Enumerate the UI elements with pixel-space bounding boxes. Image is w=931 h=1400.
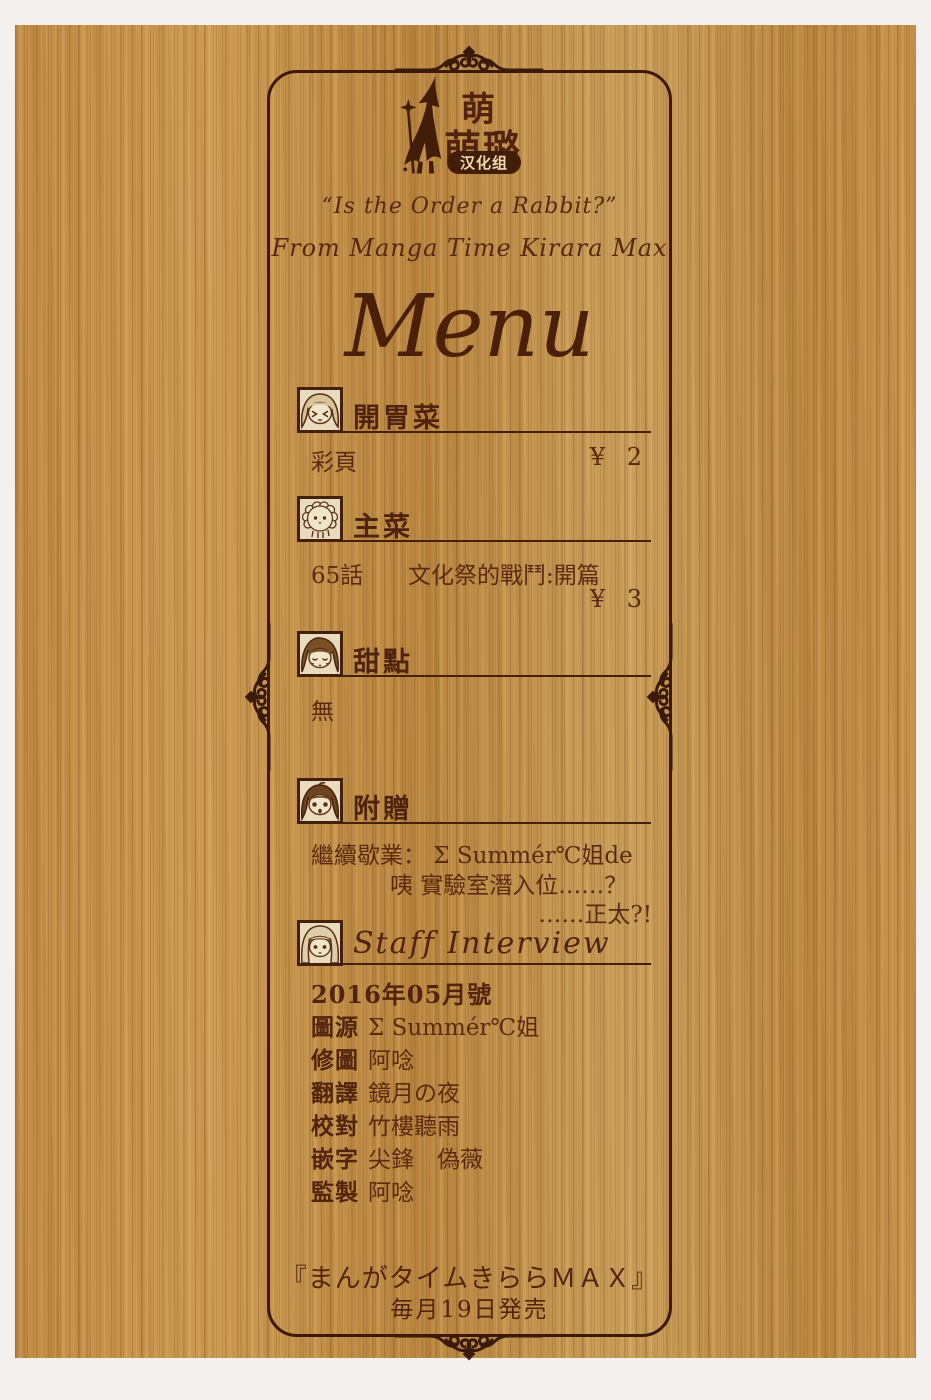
bonus-line-1: 繼續歇業： Σ Summér℃姐de [311, 836, 633, 870]
credit-name: 阿唸 [368, 1173, 414, 1207]
appetizer-avatar [297, 387, 343, 433]
menu-item: 彩頁 [311, 443, 357, 477]
dessert-avatar [297, 631, 343, 677]
section-title-main-course: 主菜 [353, 505, 413, 544]
page-title: Menu [267, 284, 672, 370]
credit-role: 校對 [311, 1107, 359, 1141]
section-rule [297, 540, 651, 542]
light-hair-girl-avatar-icon [300, 923, 340, 963]
section-rule [297, 431, 651, 433]
credit-name: 阿唸 [368, 1041, 414, 1075]
credit-role: 修圖 [311, 1041, 359, 1075]
badge-label: 汉化组 [460, 152, 508, 173]
staff-avatar [297, 920, 343, 966]
credit-name: 竹樓聽雨 [368, 1107, 460, 1141]
section-title-staff: Staff Interview [353, 926, 611, 961]
credit-name: 鏡月の夜 [368, 1074, 460, 1108]
scanlation-group-badge: 汉化组 [447, 151, 521, 174]
scroll-flourish-left-icon [241, 622, 297, 772]
main-course-avatar [297, 496, 343, 542]
credit-name: Σ Summér℃姐 [368, 1008, 539, 1042]
bonus-avatar [297, 778, 343, 824]
issue-label: 2016年05月號 [311, 975, 492, 1010]
credit-role: 嵌字 [311, 1140, 359, 1174]
scroll-flourish-right-icon [643, 622, 699, 772]
section-rule [297, 675, 651, 677]
section-rule [297, 822, 651, 824]
credit-role: 監製 [311, 1173, 359, 1207]
release-schedule: 毎月19日発売 [267, 1290, 672, 1324]
menu-item-price: ¥ 2 [520, 443, 642, 471]
menu-item: 無 [311, 692, 334, 726]
scanned-credits-page: 萌 萌璐 汉化组 “Is the Order a Rabbit?” From M… [0, 0, 931, 1400]
menu-item-price: ¥ 3 [520, 585, 642, 613]
section-title-bonus: 附贈 [353, 787, 413, 826]
credit-name: 尖鋒 偽薇 [368, 1140, 483, 1174]
surprised-girl-avatar-icon [300, 781, 340, 821]
section-rule [297, 963, 651, 965]
magazine-source-line: From Manga Time Kirara Max [267, 234, 672, 262]
section-title-appetizer: 開胃菜 [353, 396, 443, 435]
bonus-line-3: ……正太?! [450, 895, 652, 929]
chapter-number: 65話 [311, 556, 363, 590]
section-title-dessert: 甜點 [353, 640, 413, 679]
dark-hair-girl-avatar-icon [300, 634, 340, 674]
credit-role: 翻譯 [311, 1074, 359, 1108]
girl-closed-eyes-avatar-icon [300, 390, 340, 430]
series-title-line: “Is the Order a Rabbit?” [267, 194, 672, 219]
tippy-rabbit-avatar-icon [300, 499, 340, 539]
credit-role: 圖源 [311, 1008, 359, 1042]
